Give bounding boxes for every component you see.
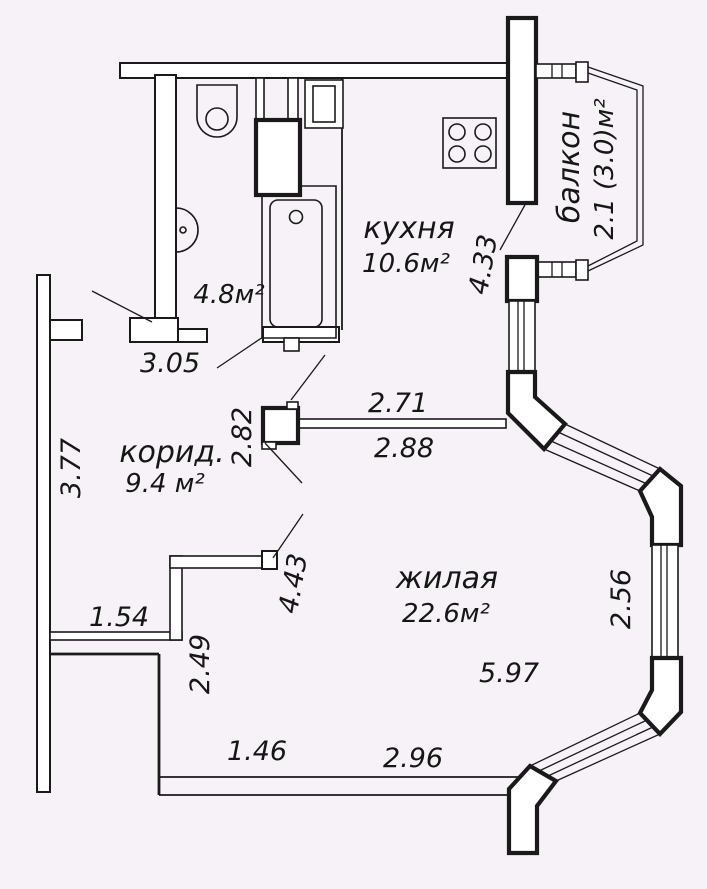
- corridor-area: 9.4 м²: [125, 469, 205, 499]
- kitchen-right-pillar: [508, 18, 536, 203]
- dim-2-56: 2.56: [606, 569, 637, 629]
- bay-window-e: [652, 545, 678, 658]
- balcony-window-lower: [536, 262, 576, 277]
- pier-tab-top: [287, 402, 298, 409]
- niche-wall-154: [50, 632, 182, 640]
- dim-5-97: 5.97: [479, 658, 539, 689]
- dim-1-46: 1.46: [227, 736, 287, 767]
- left-outer-wall: [37, 275, 50, 792]
- bathtub-tab: [284, 338, 299, 351]
- floor-plan-drawing: кухня 10.6м² 4.8м² корид. 9.4 м² жилая 2…: [0, 0, 707, 889]
- dim-2-96: 2.96: [383, 743, 443, 774]
- corridor-wall-tab: [262, 551, 277, 569]
- bathroom-left-wall: [155, 75, 176, 318]
- balcony-lower-pillar: [507, 257, 537, 301]
- dim-2-49: 2.49: [185, 634, 216, 694]
- floor-plan-page: кухня 10.6м² 4.8м² корид. 9.4 м² жилая 2…: [0, 0, 707, 889]
- corridor-wall-horizontal: [170, 556, 272, 568]
- washing-machine: [256, 120, 300, 195]
- top-wall: [120, 63, 510, 78]
- living-room-label: жилая: [395, 561, 498, 596]
- kitchen-living-wall: [298, 419, 506, 428]
- vent-duct-inner: [313, 86, 335, 122]
- bathroom-wall-foot: [130, 318, 178, 342]
- bathroom-bottom-wall: [263, 327, 339, 342]
- wall-stub-left: [256, 78, 264, 120]
- balcony-window-upper: [536, 64, 576, 78]
- living-room-area: 22.6м²: [402, 599, 490, 629]
- entry-door-jamb: [50, 320, 82, 340]
- bay-window-a: [509, 301, 535, 372]
- window-end-post: [576, 62, 588, 82]
- balcony-label: балкон: [552, 111, 587, 223]
- dim-3-05: 3.05: [140, 348, 200, 379]
- corridor-label: корид.: [119, 435, 224, 470]
- dim-2-88: 2.88: [374, 433, 434, 464]
- kitchen-area: 10.6м²: [362, 249, 450, 279]
- door-pier-post: [263, 408, 298, 443]
- bathroom-area: 4.8м²: [193, 280, 264, 310]
- wall-stub-right: [288, 78, 298, 122]
- window-end-post: [576, 260, 588, 280]
- bathroom-wall-step: [178, 329, 207, 342]
- dim-2-71: 2.71: [368, 388, 428, 419]
- dim-1-54: 1.54: [89, 602, 149, 633]
- kitchen-label: кухня: [363, 211, 454, 246]
- balcony-area: 2.1 (3.0)м²: [590, 98, 620, 239]
- dim-2-82: 2.82: [227, 407, 258, 467]
- dim-3-77: 3.77: [56, 438, 87, 498]
